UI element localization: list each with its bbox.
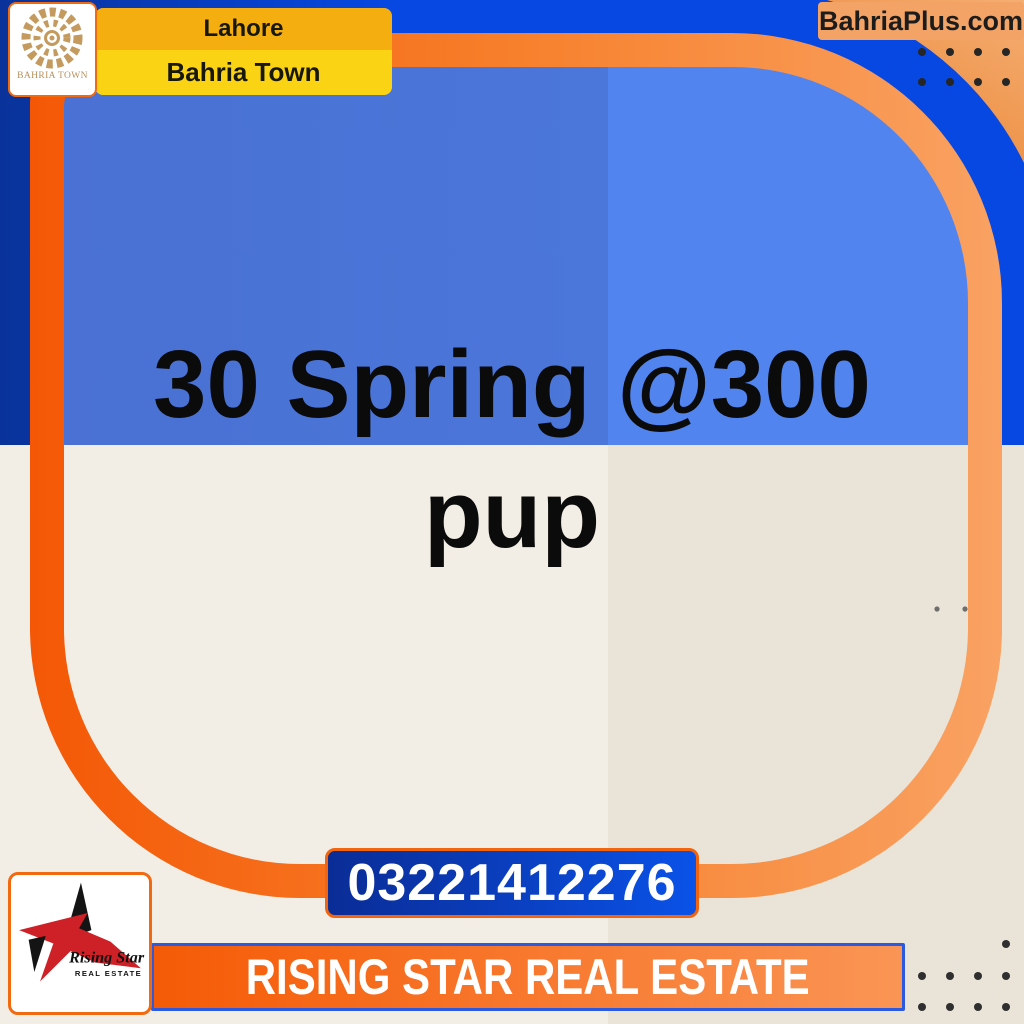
headline-line-1: 30 Spring @300: [72, 320, 952, 450]
bahria-town-emblem-icon: [10, 4, 95, 70]
town-label: Bahria Town: [166, 57, 320, 88]
agency-banner: RISING STAR REAL ESTATE: [151, 943, 905, 1011]
town-row: Bahria Town: [95, 50, 392, 95]
agency-logo-title: Rising Star: [68, 950, 145, 967]
city-row: Lahore: [95, 8, 392, 50]
real-estate-poster: BAHRIA TOWN Lahore Bahria Town BahriaPlu…: [0, 0, 1024, 1024]
rising-star-logo-icon: Rising Star REAL ESTATE: [11, 875, 149, 1012]
city-label: Lahore: [203, 15, 283, 43]
headline-line-2: pup: [72, 450, 952, 580]
bahria-town-logo-box: BAHRIA TOWN: [8, 2, 97, 97]
phone-number-button[interactable]: 03221412276: [325, 848, 699, 918]
listing-headline: 30 Spring @300 pup: [72, 320, 952, 580]
agency-logo-box: Rising Star REAL ESTATE: [8, 872, 152, 1015]
phone-number-text: 03221412276: [347, 853, 676, 913]
agency-banner-text: RISING STAR REAL ESTATE: [246, 948, 810, 1006]
bahria-logo-label: BAHRIA TOWN: [17, 71, 88, 81]
website-text: BahriaPlus.com: [819, 6, 1023, 37]
agency-logo-subtitle: REAL ESTATE: [75, 969, 142, 978]
website-label: BahriaPlus.com: [818, 2, 1024, 40]
location-box: Lahore Bahria Town: [95, 8, 392, 95]
